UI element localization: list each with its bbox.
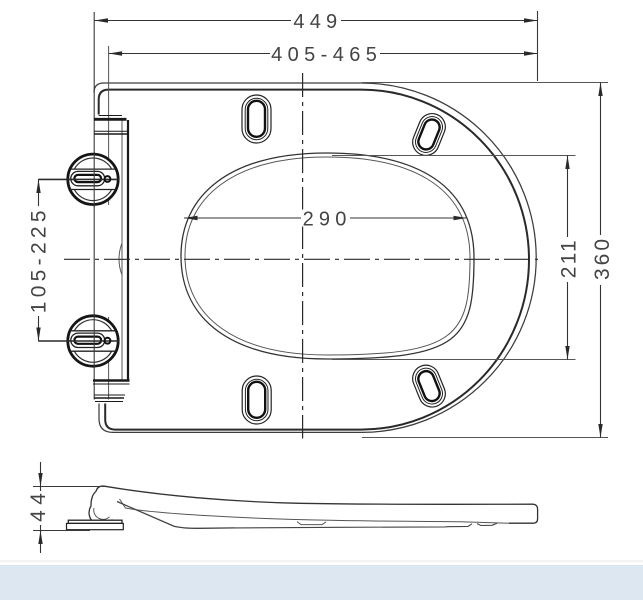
svg-text:449: 449 xyxy=(293,11,342,33)
svg-text:105-225: 105-225 xyxy=(27,206,50,313)
svg-text:405-465: 405-465 xyxy=(271,44,382,66)
svg-text:360: 360 xyxy=(591,236,614,280)
svg-text:290: 290 xyxy=(303,208,352,230)
svg-text:44: 44 xyxy=(27,488,50,522)
svg-text:211: 211 xyxy=(558,238,581,278)
